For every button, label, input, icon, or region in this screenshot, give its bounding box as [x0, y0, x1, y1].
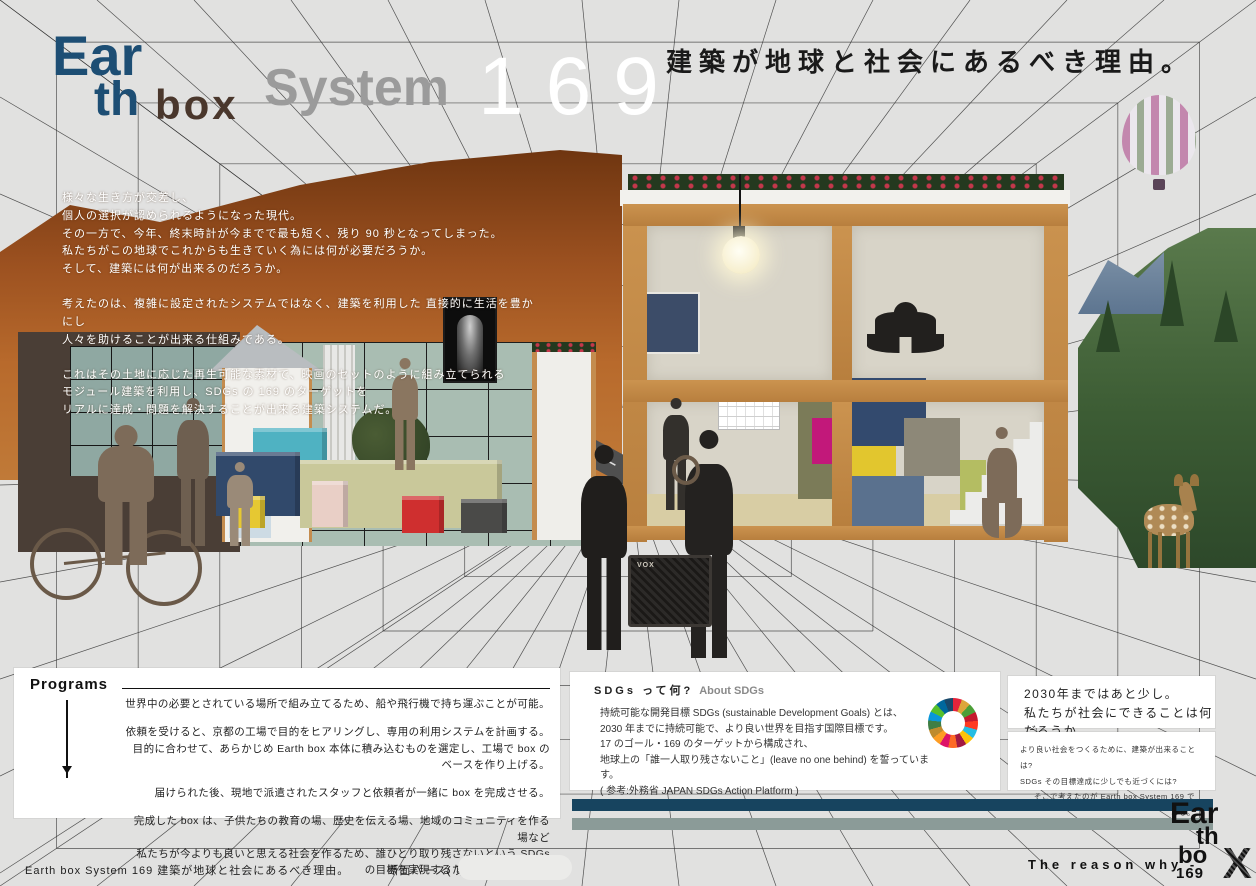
intro-line: モジュール建築を利用し、SDGs の 169 のターゲットを — [62, 384, 542, 402]
sdgs-line: ( 参考:外務省 JAPAN SDGs Action Platform ) — [600, 784, 930, 800]
front-box-pink — [312, 481, 348, 527]
sdgs-line: 17 のゴール・169 のターゲットから構成され、 — [600, 737, 930, 753]
logo-box: box — [155, 84, 239, 126]
person-head — [996, 427, 1008, 439]
deer-icon — [1136, 474, 1208, 570]
person-legs — [587, 554, 622, 650]
deer-ear — [1174, 474, 1183, 486]
page-title: 建築が地球と社会にあるべき理由。 — [640, 42, 1220, 79]
person-on-stairs — [978, 427, 1026, 545]
frame-beam-top — [623, 204, 1068, 226]
deer-ear — [1190, 474, 1199, 486]
sdgs-heading: SDGs って何?About SDGs — [588, 682, 764, 698]
person-legs — [230, 507, 249, 546]
intro-line: 様々な生き方が交差し、 — [62, 190, 542, 208]
person-torso — [875, 312, 936, 337]
logo-system: System — [264, 62, 449, 114]
sdgs-line: 持続可能な開発目標 SDGs (sustainable Development … — [600, 706, 930, 722]
person-child — [220, 462, 260, 546]
sdgs-line: 地球上の「誰一人取り残さないこと」(leave no one behind) を… — [600, 753, 930, 784]
frame-post-mid-upper — [832, 226, 852, 380]
navy-wall-panel — [640, 292, 700, 354]
hot-air-balloon-icon — [1122, 95, 1196, 191]
person-torso — [98, 446, 154, 502]
deer-leg — [1186, 532, 1190, 568]
frame-post-right — [1044, 204, 1068, 542]
programs-heading: Programs — [30, 676, 108, 693]
programs-panel: Programs 世界中の必要とされている場所で組み立てるため、船や飛行機で持ち… — [14, 668, 560, 818]
balloon-envelope — [1122, 95, 1196, 175]
programs-line: 世界中の必要とされている場所で組み立てるため、船や飛行機で持ち運ぶことが可能。 — [124, 696, 550, 712]
aside-panel-top: 2030年まではあと少し。 私たちが社会にできることは何だろうか。 — [1008, 676, 1215, 728]
intro-line: 個人の選択が認められるようになった現代。 — [62, 208, 542, 226]
programs-line: 完成した box は、子供たちの教育の場、歴史を伝える場、地域のコミュニティを作… — [124, 813, 550, 846]
person-torso — [177, 420, 209, 479]
aside-line: SDGs その目標達成に少しでも近づくには? — [1020, 777, 1177, 786]
person-head — [115, 425, 138, 448]
programs-text: 世界中の必要とされている場所で組み立てるため、船や飛行機で持ち運ぶことが可能。 … — [124, 696, 550, 878]
intro-line: リアルに達成・問題を解決することが出来る建築システムだ。 — [62, 402, 542, 420]
front-box-red — [402, 496, 444, 533]
person-head — [699, 430, 718, 449]
intro-line: これはその土地に応じた再生可能な素材で、映画のセットのように組み立てられる — [62, 367, 542, 385]
sdgs-panel: SDGs って何?About SDGs 持続可能な開発目標 SDGs (sust… — [570, 672, 1000, 790]
intro-text-block: 様々な生き方が交差し、 個人の選択が認められるようになった現代。 その一方で、今… — [62, 190, 542, 420]
sdgs-wheel-icon — [928, 698, 978, 748]
amp-label: VOX — [637, 562, 655, 569]
footer-pill — [458, 855, 572, 880]
divider-bar-blue — [572, 799, 1213, 811]
aside-panel-bottom: より良い社会をつくるために、建築が出来ることは? SDGs その目標達成に少しで… — [1008, 732, 1215, 790]
deer-leg — [1158, 532, 1162, 568]
programs-line: 届けられた後、現地で派遣されたスタッフと依頼者が一緒に box を完成させる。 — [124, 785, 550, 801]
footer-logo: Ear th bo X 169 — [1170, 802, 1254, 884]
intro-line: 考えたのは、複雑に設定されたシステムではなく、建築を利用した 直接的に生活を豊か… — [62, 296, 542, 332]
down-arrow-icon — [66, 700, 68, 778]
person-mother — [168, 398, 218, 546]
intro-line: そして、建築には何が出来るのだろうか。 — [62, 261, 542, 279]
person-head — [235, 462, 245, 472]
rope-coil-icon — [672, 455, 700, 485]
person-torso — [987, 448, 1018, 502]
vox-amplifier: VOX — [628, 555, 712, 627]
person-legs — [982, 498, 1021, 538]
footer-logo-x: X — [1223, 846, 1252, 882]
person-legs — [105, 499, 147, 565]
poster-canvas: VOX Ear th box System 169 建築が地球と社会にあるべき理… — [0, 0, 1256, 886]
divider-bar-gray — [572, 818, 1213, 830]
person-head — [671, 398, 682, 409]
intro-line: 私たちがこの地球でこれからも生きていく為には何が必要だろうか。 — [62, 243, 542, 261]
logo-th: th — [94, 76, 139, 124]
person-torso — [581, 476, 627, 558]
intro-line: 人々を助けることが出来る仕組みである。 — [62, 332, 542, 350]
sdgs-heading-jp: SDGs って何? — [594, 685, 693, 697]
person-legs — [181, 476, 205, 546]
light-bulb-icon — [722, 236, 760, 274]
person-legs — [395, 417, 415, 470]
storage-box-gray — [904, 418, 960, 476]
footer-title: Earth box System 169 建築が地球と社会にあるべき理由。 — [25, 865, 349, 877]
deer-leg — [1148, 532, 1152, 568]
programs-line: 目的に合わせて、あらかじめ Earth box 本体に積み込むものを選定し、工場… — [124, 741, 550, 774]
sdgs-heading-en: About SDGs — [699, 685, 764, 697]
aside-line: 2030年まではあと少し。 — [1024, 687, 1178, 701]
person-legs — [867, 334, 945, 352]
person-torso — [227, 475, 253, 509]
sdgs-line: 2030 年までに持続可能で、より良い世界を目指す国際目標です。 — [600, 722, 930, 738]
frame-post-mid-lower — [832, 402, 852, 526]
footer-logo-number: 169 — [1176, 868, 1204, 880]
deer-leg — [1176, 532, 1180, 568]
intro-line: その一方で、今年、終末時計が今までで最も短く、残り 90 秒となってしまった。 — [62, 226, 542, 244]
sdgs-text: 持続可能な開発目標 SDGs (sustainable Development … — [600, 706, 930, 799]
front-box-charcoal — [461, 499, 507, 533]
person-cyclist — [82, 425, 170, 565]
person-upper-floor — [858, 302, 953, 356]
heading-rule — [122, 688, 550, 689]
balloon-basket — [1153, 179, 1165, 190]
aside-line: より良い社会をつくるために、建築が出来ることは? — [1020, 745, 1195, 770]
person-head — [595, 445, 614, 464]
programs-line: 依頼を受けると、京都の工場で目的をヒアリングし、専用の利用システムを計画する。 — [124, 724, 550, 740]
